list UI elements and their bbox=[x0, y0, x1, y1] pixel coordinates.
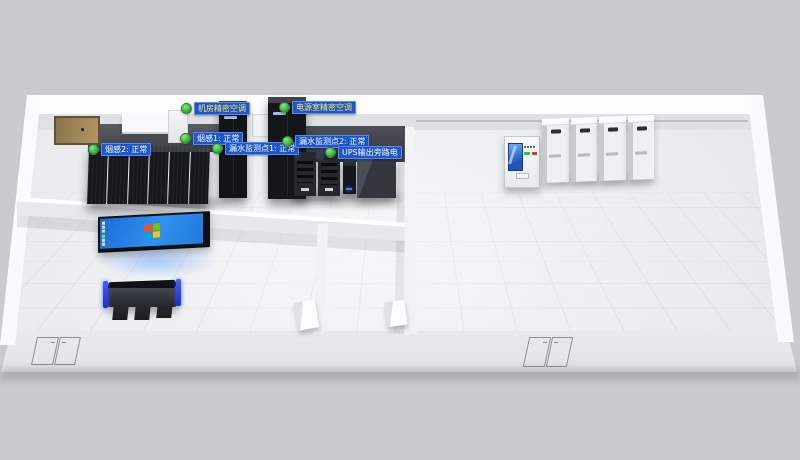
hotspot-ups-output[interactable]: UPS输出旁路电 bbox=[325, 146, 402, 159]
red-led bbox=[532, 152, 537, 155]
ups-tower-2[interactable] bbox=[318, 154, 340, 196]
cabinet-plate bbox=[635, 151, 647, 154]
white-cabinet[interactable] bbox=[571, 117, 598, 182]
console-pedestal bbox=[134, 305, 151, 320]
status-dot-icon bbox=[181, 103, 192, 114]
hotspot-label[interactable]: 烟感2: 正常 bbox=[101, 143, 151, 156]
console-pedestal bbox=[112, 305, 129, 320]
cabinet-vent bbox=[551, 129, 561, 133]
floor-pedestal bbox=[384, 300, 407, 328]
ups-tower-1[interactable] bbox=[294, 152, 316, 196]
cabinet-plate bbox=[549, 154, 561, 157]
ups-vents bbox=[321, 163, 337, 185]
cabinet-plate bbox=[606, 152, 618, 155]
ups-vents bbox=[297, 161, 313, 183]
door-outline-middle[interactable] bbox=[523, 337, 573, 367]
indicator-dots bbox=[524, 146, 537, 148]
battery-cabinet[interactable] bbox=[357, 159, 396, 198]
power-led bbox=[346, 188, 352, 190]
ups-nameplate bbox=[301, 188, 309, 191]
server-tower-small[interactable] bbox=[343, 162, 356, 194]
white-cabinet[interactable] bbox=[542, 118, 569, 183]
server-rack[interactable] bbox=[189, 147, 210, 204]
windows-logo-icon bbox=[144, 223, 160, 240]
wooden-door[interactable] bbox=[54, 116, 100, 145]
cabinet-vent bbox=[580, 128, 590, 132]
hotspot-smoke-sensor-2[interactable]: 烟感2: 正常 bbox=[88, 143, 151, 156]
console-accent-left bbox=[103, 281, 108, 308]
white-cabinet-row[interactable] bbox=[542, 115, 654, 183]
door-handle bbox=[81, 128, 84, 131]
status-dot-icon bbox=[180, 133, 191, 144]
wall-cabinet-small[interactable] bbox=[122, 114, 168, 134]
ac-display bbox=[224, 116, 237, 119]
status-dot-icon bbox=[282, 136, 293, 147]
desktop-icons bbox=[102, 220, 110, 246]
hotspot-label[interactable]: UPS输出旁路电 bbox=[338, 146, 402, 159]
cabinet-vent bbox=[608, 127, 618, 131]
video-wall-screen bbox=[100, 213, 203, 248]
white-cabinet[interactable] bbox=[628, 115, 655, 180]
cabinet-plate bbox=[578, 153, 590, 156]
hotspot-label[interactable]: 机房精密空调 bbox=[194, 102, 250, 115]
server-rack[interactable] bbox=[168, 147, 189, 204]
datacenter-3d-scene: 机房精密空调 电源室精密空调 烟感2: 正常 烟感1: 正常 漏水监测点1: 正… bbox=[0, 0, 800, 460]
monitor-screen bbox=[508, 143, 523, 171]
status-dot-icon bbox=[279, 102, 290, 113]
ups-top bbox=[318, 154, 323, 159]
hotspot-label[interactable]: 电源室精密空调 bbox=[292, 101, 356, 114]
environment-monitor-box[interactable] bbox=[504, 136, 540, 188]
status-dot-icon bbox=[88, 144, 99, 155]
status-dot-icon bbox=[325, 147, 336, 158]
operator-console[interactable] bbox=[106, 288, 178, 307]
hotspot-ac-machine-room[interactable]: 机房精密空调 bbox=[181, 102, 250, 115]
green-led bbox=[524, 152, 530, 155]
video-wall[interactable] bbox=[98, 211, 210, 253]
cabinet-vent bbox=[637, 126, 647, 130]
door-outline-left[interactable] bbox=[31, 337, 81, 365]
console-accent-right bbox=[176, 279, 181, 306]
white-cabinet[interactable] bbox=[599, 116, 626, 181]
hotspot-ac-power-room[interactable]: 电源室精密空调 bbox=[279, 101, 356, 114]
ups-nameplate bbox=[325, 188, 333, 191]
card-slot bbox=[516, 173, 529, 179]
bottom-wall-shadow bbox=[0, 368, 800, 380]
status-dot-icon bbox=[212, 143, 223, 154]
